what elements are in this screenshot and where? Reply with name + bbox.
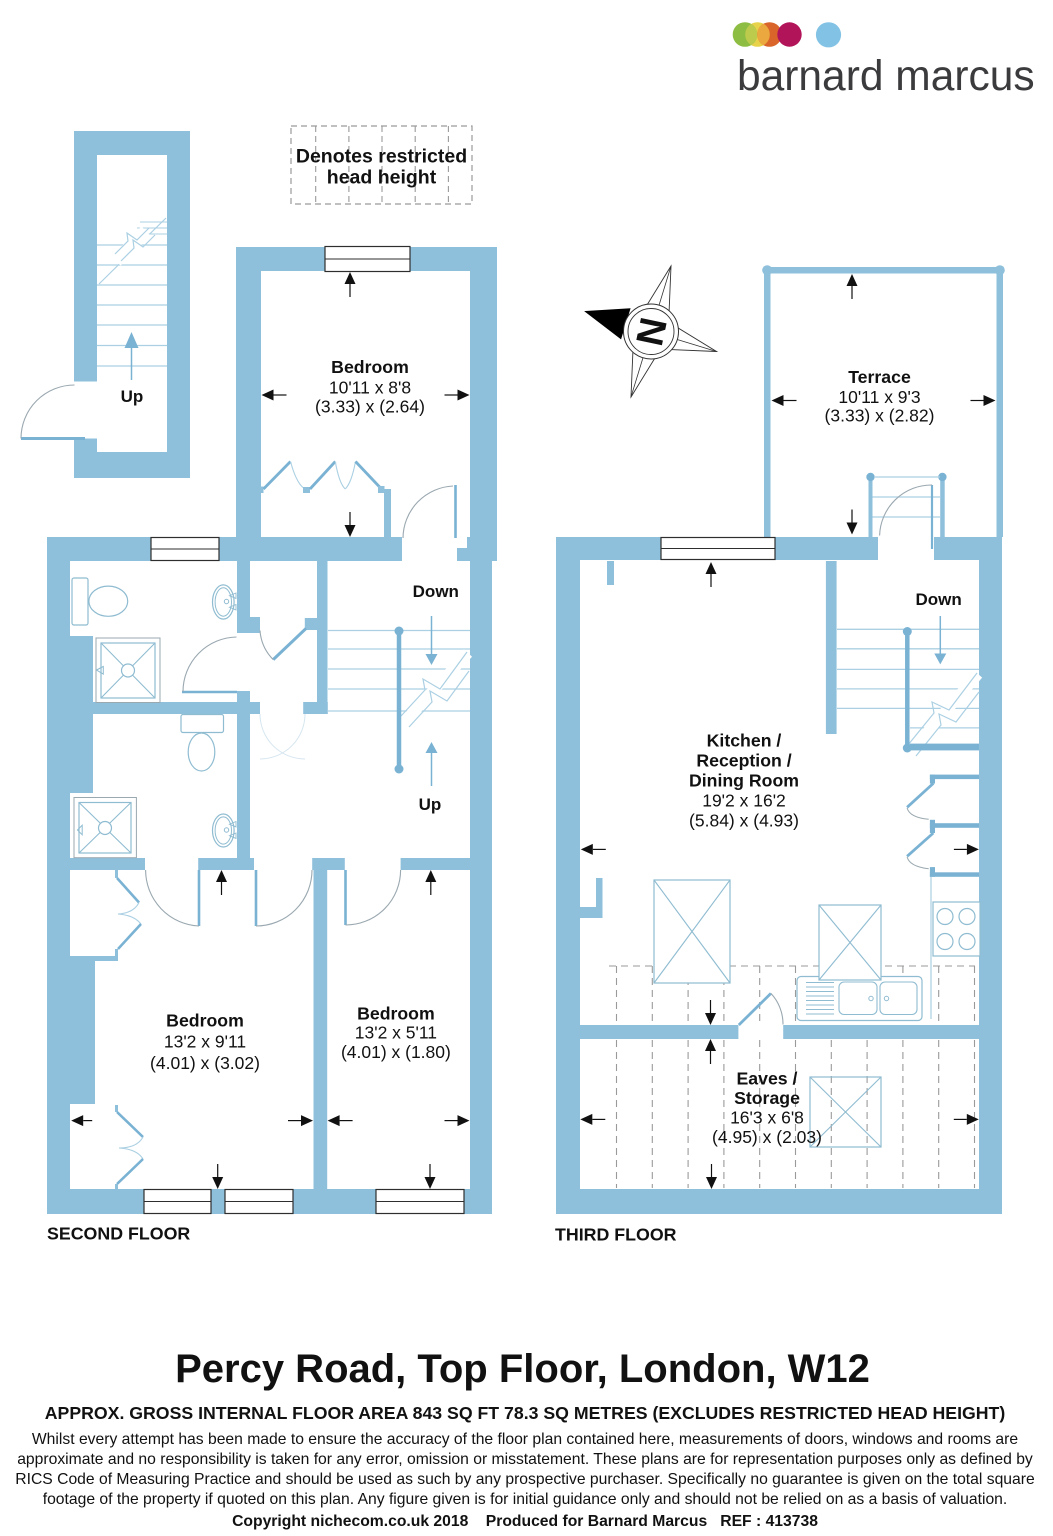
svg-text:Down: Down (413, 582, 459, 601)
svg-text:(4.01) x (3.02): (4.01) x (3.02) (150, 1053, 260, 1073)
svg-text:head height: head height (327, 167, 437, 189)
svg-text:Whilst every attempt has been: Whilst every attempt has been made to en… (32, 1431, 1018, 1448)
svg-text:(5.84) x (4.93): (5.84) x (4.93) (689, 810, 799, 830)
svg-text:Up: Up (419, 795, 442, 814)
svg-text:Up: Up (121, 387, 144, 406)
svg-text:approximate and no responsibil: approximate and no responsibility is tak… (17, 1451, 1033, 1468)
svg-text:Percy Road, Top Floor, London,: Percy Road, Top Floor, London, W12 (175, 1347, 870, 1391)
svg-text:Bedroom: Bedroom (357, 1003, 435, 1023)
svg-text:10'11 x 9'3: 10'11 x 9'3 (838, 387, 920, 407)
svg-text:Kitchen /: Kitchen / (707, 730, 782, 750)
svg-text:barnard marcus: barnard marcus (737, 53, 1035, 100)
svg-text:Bedroom: Bedroom (331, 357, 409, 377)
svg-text:(4.95) x (2.03): (4.95) x (2.03) (712, 1127, 822, 1147)
svg-text:Denotes restricted: Denotes restricted (296, 146, 467, 168)
svg-text:Reception /: Reception / (696, 750, 791, 770)
svg-text:Storage: Storage (734, 1088, 800, 1108)
svg-text:13'2 x 9'11: 13'2 x 9'11 (164, 1032, 246, 1052)
svg-text:APPROX. GROSS INTERNAL FLOOR A: APPROX. GROSS INTERNAL FLOOR AREA 843 SQ… (45, 1403, 1006, 1423)
svg-text:SECOND FLOOR: SECOND FLOOR (47, 1224, 190, 1244)
svg-text:Bedroom: Bedroom (166, 1011, 244, 1031)
svg-text:(4.01) x (1.80): (4.01) x (1.80) (341, 1042, 451, 1062)
svg-text:Terrace: Terrace (848, 367, 911, 387)
svg-text:(3.33) x (2.82): (3.33) x (2.82) (825, 406, 935, 426)
svg-text:Eaves /: Eaves / (737, 1068, 798, 1088)
svg-text:RICS Code of Measuring Practic: RICS Code of Measuring Practice and shou… (15, 1471, 1035, 1488)
svg-text:(3.33) x (2.64): (3.33) x (2.64) (315, 397, 425, 417)
svg-text:footage of the property if quo: footage of the property if quoted on thi… (43, 1491, 1008, 1508)
svg-text:Dining Room: Dining Room (689, 770, 799, 790)
svg-text:10'11 x 8'8: 10'11 x 8'8 (329, 377, 411, 397)
svg-text:Copyright nichecom.co.uk 2018: Copyright nichecom.co.uk 2018 Produced f… (232, 1513, 818, 1530)
svg-text:Down: Down (915, 590, 961, 609)
svg-text:THIRD FLOOR: THIRD FLOOR (555, 1225, 677, 1245)
svg-text:16'3 x 6'8: 16'3 x 6'8 (730, 1107, 804, 1127)
svg-text:19'2 x 16'2: 19'2 x 16'2 (702, 790, 786, 810)
svg-text:13'2 x 5'11: 13'2 x 5'11 (355, 1023, 437, 1043)
